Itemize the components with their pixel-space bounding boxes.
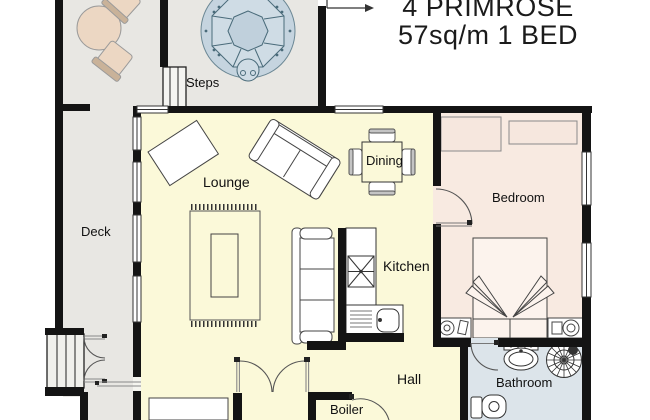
bedroom-door-opening: [433, 186, 441, 224]
wardrobe-icon: [509, 121, 577, 144]
window: [133, 162, 141, 202]
coffee-table-icon: [211, 234, 238, 297]
wall: [45, 387, 84, 396]
bed-icon: [466, 238, 554, 338]
wall: [55, 104, 90, 111]
room-label-deck: Deck: [81, 225, 111, 240]
window: [133, 215, 141, 262]
steps-lower: [47, 334, 84, 388]
room-label-lounge: Lounge: [203, 174, 250, 190]
nightstand-icon: [548, 318, 583, 338]
room-label-hall: Hall: [397, 371, 421, 387]
toilet-icon: [471, 395, 506, 418]
stove-icon: [348, 256, 374, 287]
wall: [55, 0, 63, 330]
wall: [160, 0, 168, 67]
wall: [45, 328, 84, 335]
direction-arrow-icon: [327, 0, 374, 12]
steps-upper: [163, 67, 186, 107]
wall: [133, 106, 141, 420]
sideboard-icon: [149, 398, 228, 420]
bathroom-door-opening: [471, 338, 498, 347]
wall: [338, 333, 404, 342]
plan-title-line2: 57sq/m 1 BED: [368, 21, 608, 49]
wall: [318, 6, 326, 107]
room-label-boiler: Boiler: [330, 403, 363, 418]
room-label-bathroom: Bathroom: [496, 376, 552, 391]
deck-floor-bottom: [84, 388, 133, 420]
room-label-steps: Steps: [186, 76, 219, 91]
room-label-dining: Dining: [366, 154, 403, 169]
shower-icon: [547, 343, 582, 378]
wall: [338, 228, 346, 334]
wall: [460, 347, 468, 420]
wall: [307, 341, 346, 350]
wall: [80, 392, 88, 420]
plan-svg: [0, 0, 650, 420]
window: [335, 106, 383, 113]
plan-title: 4 PRIMROSE 57sq/m 1 BED: [368, 0, 608, 49]
plan-title-line1: 4 PRIMROSE: [368, 0, 608, 21]
window: [582, 152, 591, 205]
window: [582, 243, 591, 297]
window: [133, 276, 141, 322]
wardrobe-icon: [441, 117, 501, 151]
sofa-small-icon: [292, 228, 334, 344]
sink-icon: [346, 305, 403, 336]
deck-door-opening: [133, 377, 141, 391]
hall-floor-ext: [433, 347, 460, 420]
wall: [308, 392, 352, 400]
floor-plan: 4 PRIMROSE 57sq/m 1 BED Steps Deck Loung…: [0, 0, 650, 420]
room-label-bedroom: Bedroom: [492, 191, 545, 206]
window: [133, 117, 141, 150]
wall: [433, 338, 591, 347]
nightstand-icon: [437, 318, 471, 338]
room-label-kitchen: Kitchen: [383, 258, 430, 274]
window: [137, 106, 168, 113]
wall: [233, 393, 242, 420]
